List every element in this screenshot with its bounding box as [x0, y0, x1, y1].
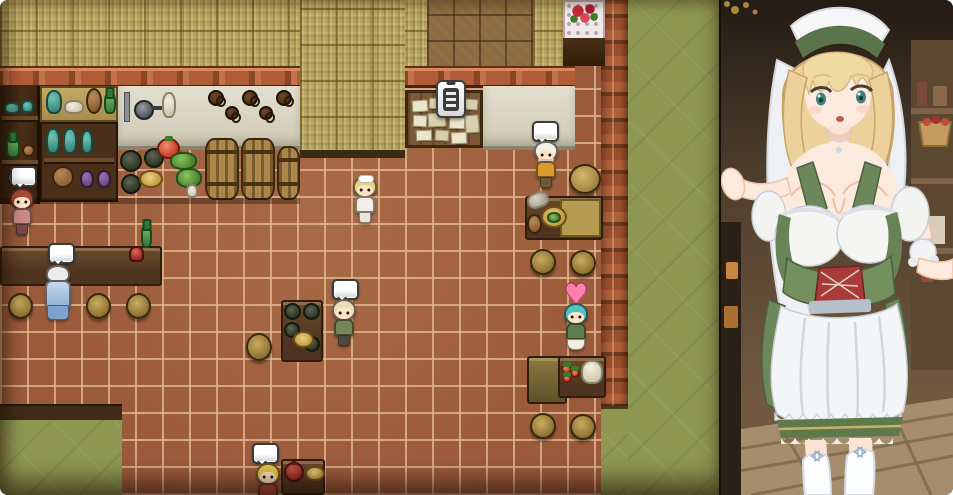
speech-bubble-icon: [532, 121, 559, 142]
furniture-shadow: [0, 198, 300, 204]
radish: [186, 184, 198, 198]
jug: [527, 214, 542, 234]
npc-sprite: [254, 463, 282, 495]
sprite-body: [536, 161, 556, 178]
green-floor-bottom-left: [0, 420, 122, 495]
brick-counter-trim-right: [405, 66, 575, 88]
box: [933, 86, 947, 106]
purple-vase: [97, 170, 111, 188]
paper-note: [449, 117, 465, 130]
wooden-barrel: [205, 138, 239, 200]
parquet-wall-section: [427, 0, 533, 68]
straw-wall-middle: [300, 0, 405, 154]
sprite-legs: [16, 224, 28, 235]
bottle: [917, 82, 927, 106]
hanging-mug: [225, 106, 239, 120]
stool: [246, 333, 272, 361]
npc-sprite: [8, 188, 36, 238]
paper-note: [451, 132, 468, 145]
bar-stool: [8, 293, 33, 319]
stool: [530, 249, 556, 275]
teal-plate: [4, 102, 20, 114]
game-viewport[interactable]: ♥: [0, 0, 719, 495]
sprite-body: [258, 483, 278, 495]
wood-floor-border: [0, 404, 122, 420]
teal-vase: [63, 128, 77, 154]
npc-sprite: [562, 303, 590, 353]
stool: [530, 413, 556, 439]
clipboard-pad: [443, 88, 459, 111]
green-floor-bottom-right: [601, 406, 628, 495]
rose-table-front: [563, 38, 605, 66]
pickle-keg: [120, 150, 142, 172]
soup-contents: [547, 212, 561, 223]
npc-sprite: [532, 141, 560, 191]
player-sprite: [351, 176, 379, 226]
wall-post-lamps: [721, 222, 741, 495]
brick-counter-trim-left: [0, 66, 300, 88]
kitchen-counter-right: [483, 86, 575, 150]
shelf-board: [2, 116, 38, 122]
brick-pillar: [601, 0, 628, 406]
stool: [570, 414, 596, 440]
keg: [303, 303, 320, 320]
hanging-mug: [242, 90, 258, 106]
sprite-legs: [359, 212, 371, 223]
green-bottle: [141, 224, 152, 248]
purple-vase: [80, 170, 94, 188]
teal-jar: [46, 90, 62, 114]
red-goblet: [129, 246, 144, 262]
hanging-mug: [276, 90, 292, 106]
apron: [771, 304, 907, 428]
golden-plate: [293, 331, 314, 348]
screenshot-root: ♥: [0, 0, 953, 495]
clay-cup: [22, 144, 35, 157]
sprite-robe-hem: [47, 305, 69, 320]
sprite-eyes: [359, 188, 371, 192]
sprite-robe: [45, 280, 71, 307]
sprite-eyes: [16, 200, 28, 204]
rose-bouquet: [570, 3, 598, 25]
flour-sack: [581, 360, 603, 384]
clay-pot: [52, 166, 74, 188]
wooden-barrel: [241, 138, 275, 200]
waitress-artwork: [721, 0, 953, 495]
frying-pan: [134, 100, 154, 120]
bar-stool: [126, 293, 151, 319]
basket: [64, 100, 84, 114]
sprite-body: [355, 196, 375, 213]
sprite-legs: [540, 177, 552, 188]
speech-bubble-icon: [252, 443, 279, 464]
berries: [562, 374, 572, 383]
spatula: [124, 92, 130, 122]
sprite-eyes: [570, 315, 582, 319]
waistband: [809, 299, 871, 314]
sprite-legs: [338, 335, 350, 346]
red-pot: [284, 462, 304, 482]
round-table-small: [569, 164, 601, 194]
sprite-eyes: [338, 311, 350, 315]
wooden-barrel: [277, 146, 300, 200]
straw-wall-top-right: [533, 0, 565, 68]
blush: [856, 105, 870, 113]
teal-bowl: [21, 100, 34, 113]
sprite-apron: [567, 339, 585, 350]
cuff-frill-bump: [908, 257, 918, 267]
mouth: [836, 116, 844, 122]
sprite-eyes: [540, 153, 552, 157]
npc-sprite: [330, 299, 358, 349]
green-flask: [104, 92, 116, 114]
green-jug: [6, 136, 20, 158]
bar-stool: [86, 293, 111, 319]
paper-note: [435, 130, 450, 142]
sprite-body: [566, 323, 586, 340]
paper-note: [412, 99, 429, 112]
clipboard-clip: [447, 80, 456, 85]
sprite-body: [12, 208, 32, 225]
green-wall-right: [628, 0, 719, 495]
pan-handle: [152, 106, 162, 110]
hanging-mug: [259, 106, 273, 120]
npc-sprite: [44, 263, 72, 321]
paper-note: [416, 130, 432, 142]
blush: [808, 106, 822, 114]
sprite-eyes: [262, 475, 274, 479]
clipboard-quest-icon[interactable]: [436, 80, 466, 118]
pickle-keg: [121, 174, 141, 194]
stool: [570, 250, 596, 276]
bread-plate: [305, 466, 325, 481]
wall-base-edge: [300, 150, 405, 158]
teal-vase: [46, 128, 60, 154]
brown-vase: [86, 88, 102, 114]
speech-bubble-icon: [48, 243, 75, 264]
teal-vase: [81, 130, 93, 154]
shelf-board: [44, 158, 114, 164]
hanging-mug: [208, 90, 224, 106]
character-art-panel: [719, 0, 953, 495]
speech-bubble-icon: [10, 166, 37, 187]
paper-note: [413, 115, 428, 128]
pendant: [836, 147, 842, 153]
golden-platter: [139, 170, 163, 188]
sprite-body: [334, 319, 354, 336]
white-jug: [162, 92, 176, 118]
speech-bubble-icon: [332, 279, 359, 300]
keg: [284, 303, 301, 320]
